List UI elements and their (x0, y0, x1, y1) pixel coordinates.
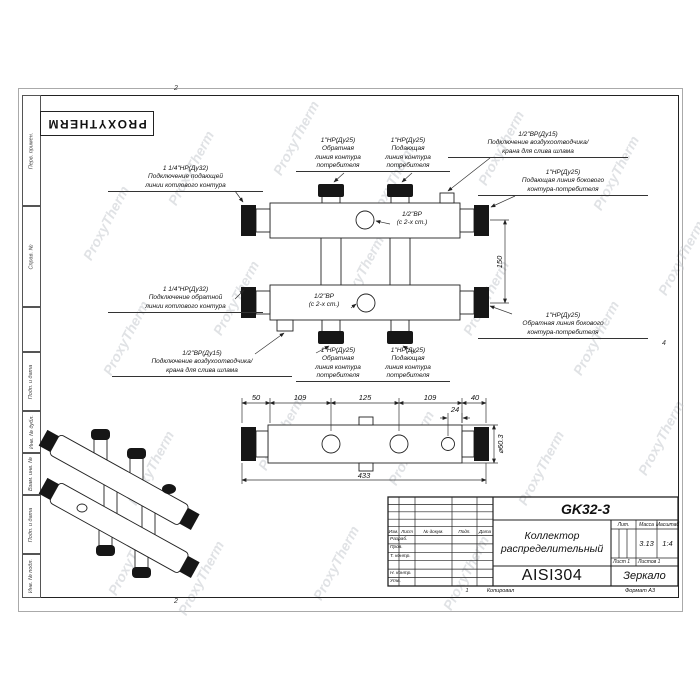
annotation-boiler-supply: 1 1/4"НР(Ду32) Подключение подающей лини… (108, 165, 263, 192)
row-prov: Пров. (390, 544, 415, 552)
annotation-consumer-supply-bottom: 1"НР(Ду25) Подающая линия контура потреб… (366, 347, 450, 382)
mass-value: 3.13 (636, 529, 657, 558)
front-view (256, 193, 474, 332)
scale-value: 1:4 (657, 529, 678, 558)
annotation-air-vent-top: 1/2"ВР(Ду15) Подключение воздухоотводчик… (448, 131, 628, 158)
col-data: Дата (477, 527, 493, 536)
sheets-label: Листов 1 (638, 558, 676, 566)
annotation-air-vent-bottom: 1/2"ВР(Ду15) Подключение воздухоотводчик… (112, 350, 292, 377)
dim-109b: 109 (424, 393, 437, 402)
annotation-side-return: 1"НР(Ду25) Обратная линия бокового конту… (478, 312, 648, 339)
part-name: Коллектор распределительный (495, 522, 609, 564)
col-podp: Подп. (452, 527, 477, 536)
annotation-side-supply: 1"НР(Ду25) Подающая линия бокового конту… (478, 169, 648, 196)
side-view (256, 417, 474, 471)
footer-copy-num: 1 (462, 587, 472, 595)
dim-150-label: 150 (495, 255, 504, 268)
mirror-note: Зеркало (611, 566, 678, 585)
row-blank (390, 561, 415, 569)
annotation-boiler-return: 1 1/4"НР(Ду32) Подключение обратной лини… (108, 286, 263, 313)
annotation-plug-top: 1/2"ВР (с 2-х ст.) (388, 211, 436, 228)
footer-copy: Копировал (478, 587, 523, 595)
dim-433: 433 (358, 471, 371, 480)
brand-stamp-text: PROXYTHERM (47, 117, 147, 131)
dim-50: 50 (252, 393, 261, 402)
dim-diameter: ⌀60.3 (496, 434, 505, 454)
col-docnum: № докум. (415, 527, 452, 536)
dim-109a: 109 (294, 393, 307, 402)
mass-label: Масса (636, 520, 657, 529)
col-izm: Изм. (388, 527, 399, 536)
row-razrab: Разраб. (390, 536, 415, 544)
footer-format: Формат А3 (615, 587, 665, 595)
row-nkontr: Н. контр. (390, 569, 415, 577)
dim-24: 24 (450, 405, 459, 414)
material: AISI304 (493, 566, 611, 585)
iso-view (37, 428, 200, 580)
scale-label: Масштаб (657, 520, 678, 529)
row-utv: Утв. (390, 578, 415, 586)
col-list: Лист (399, 527, 415, 536)
doc-number: GK32-3 (493, 499, 678, 518)
dim-125: 125 (359, 393, 372, 402)
lit-label: Лит. (611, 520, 636, 529)
brand-stamp-box: PROXYTHERM (40, 111, 154, 136)
row-tkontr: Т. контр. (390, 552, 415, 560)
sheet-label: Лист 1 (613, 558, 635, 566)
dim-40: 40 (471, 393, 480, 402)
annotation-consumer-supply-top: 1"НР(Ду25) Подающая линия контура потреб… (366, 137, 450, 172)
annotation-plug-bottom: 1/2"ВР (с 2-х ст.) (296, 293, 352, 310)
